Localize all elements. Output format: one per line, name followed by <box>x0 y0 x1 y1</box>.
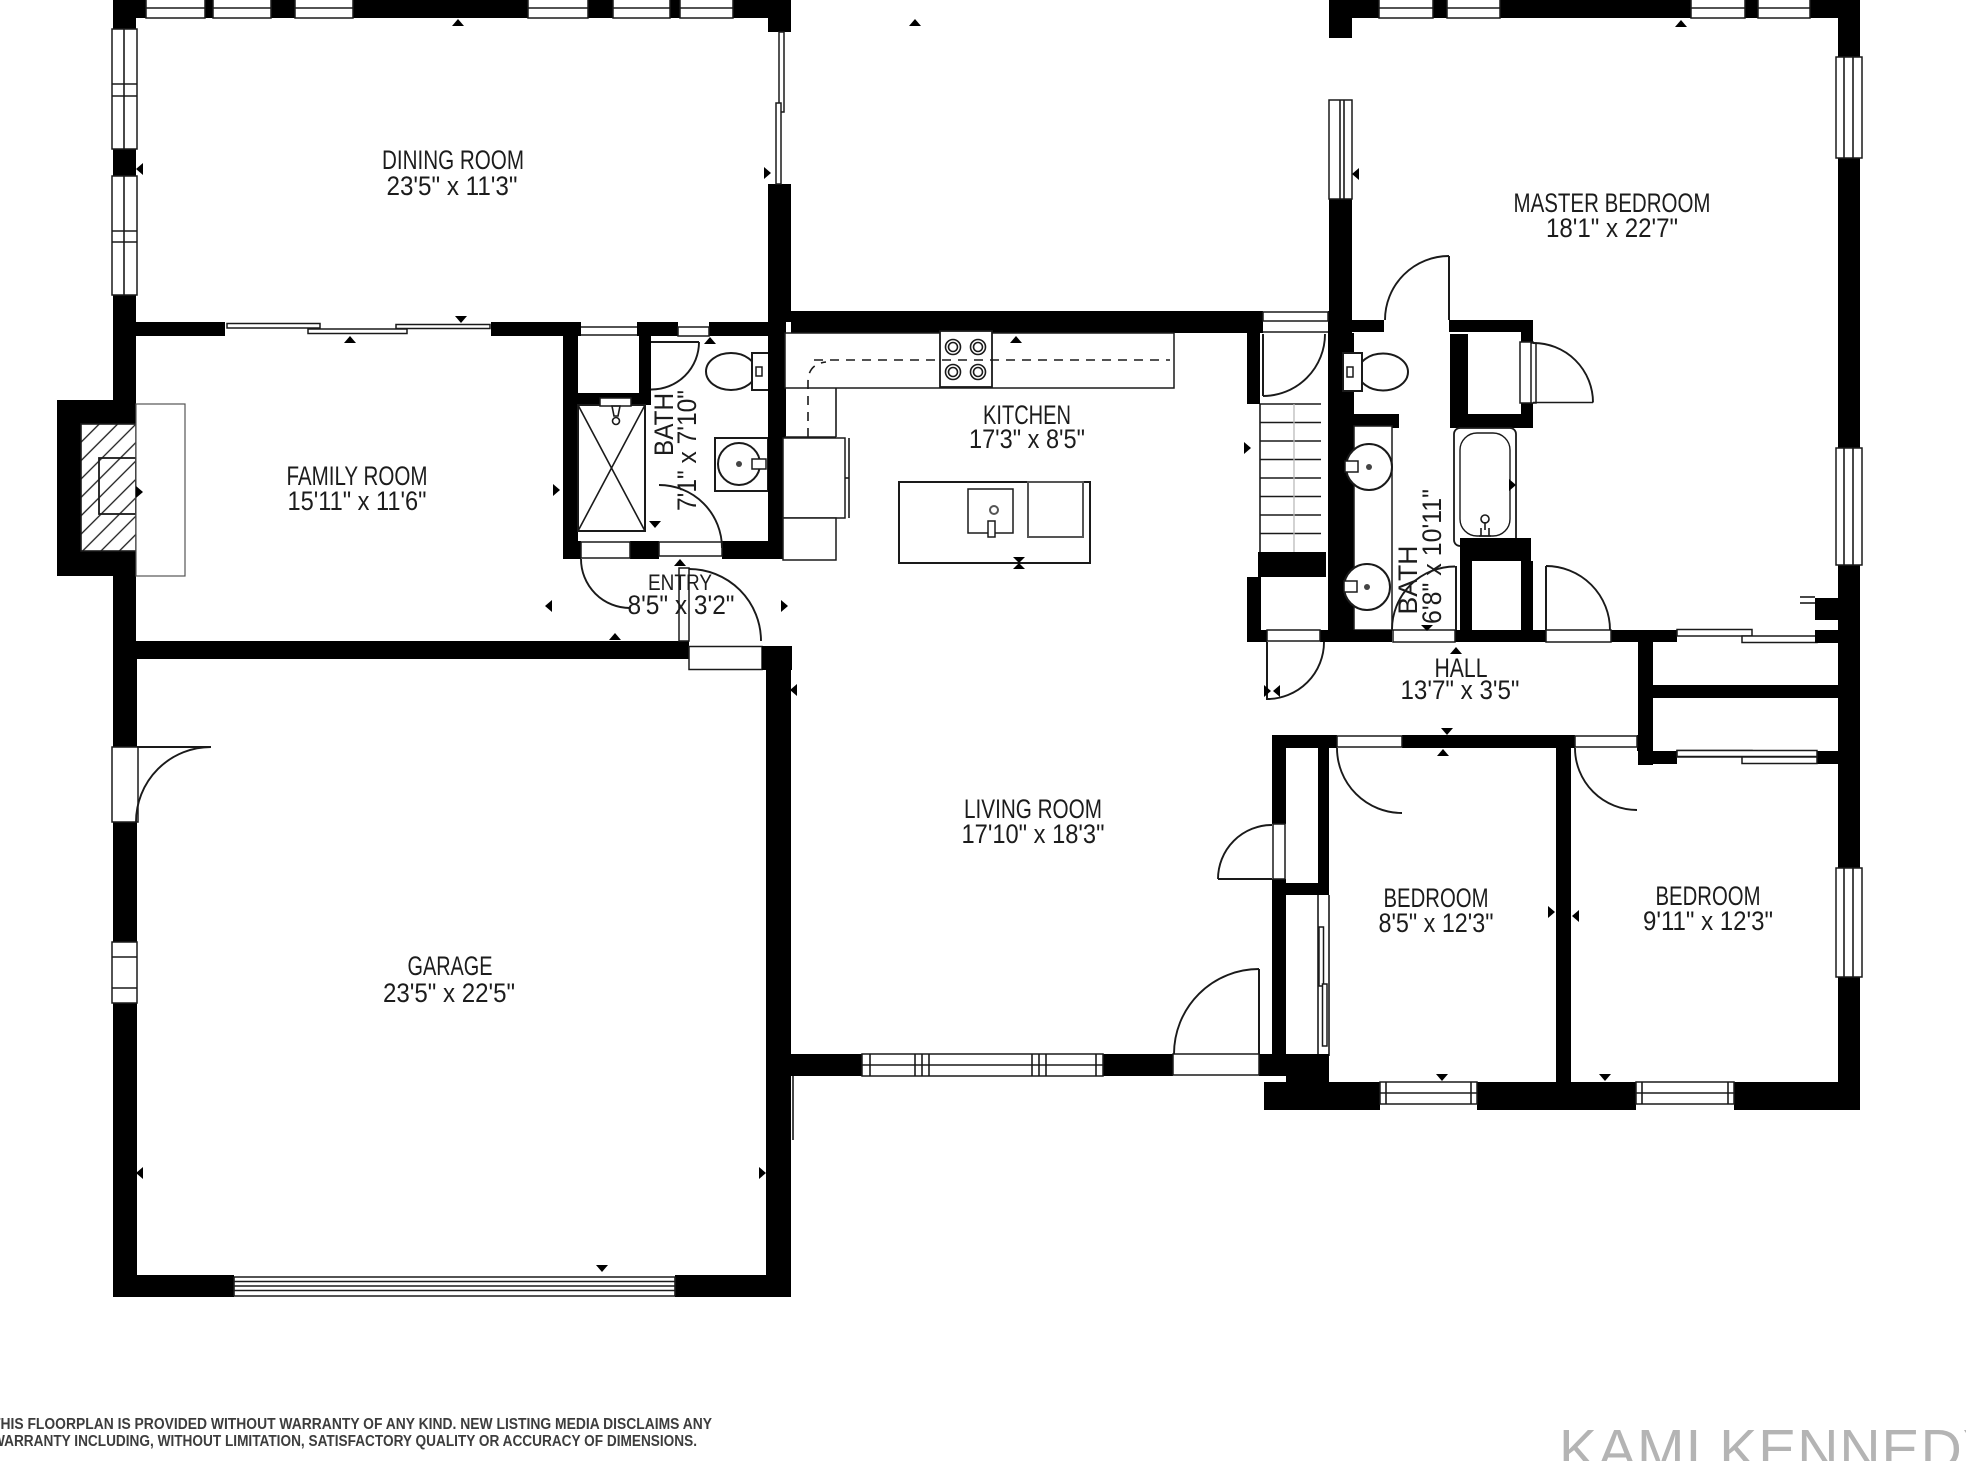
svg-text:7'1" x 7'10": 7'1" x 7'10" <box>672 390 702 511</box>
svg-text:THIS FLOORPLAN IS PROVIDED WIT: THIS FLOORPLAN IS PROVIDED WITHOUT WARRA… <box>0 1416 712 1433</box>
svg-text:8'5" x 3'2": 8'5" x 3'2" <box>628 590 735 620</box>
svg-text:WARRANTY INCLUDING, WITHOUT LI: WARRANTY INCLUDING, WITHOUT LIMITATION, … <box>0 1433 697 1450</box>
svg-text:23'5" x 22'5": 23'5" x 22'5" <box>383 978 515 1008</box>
svg-text:GARAGE: GARAGE <box>408 951 493 981</box>
svg-text:18'1" x 22'7": 18'1" x 22'7" <box>1546 213 1678 243</box>
svg-text:17'3" x 8'5": 17'3" x 8'5" <box>969 424 1085 454</box>
svg-text:9'11" x 12'3": 9'11" x 12'3" <box>1643 906 1773 936</box>
svg-text:KAMI KENNEDY: KAMI KENNEDY <box>1559 1418 1966 1461</box>
svg-text:23'5" x 11'3": 23'5" x 11'3" <box>387 171 518 201</box>
svg-text:17'10" x 18'3": 17'10" x 18'3" <box>962 819 1105 849</box>
svg-text:13'7" x 3'5": 13'7" x 3'5" <box>1401 675 1520 705</box>
svg-text:8'5" x 12'3": 8'5" x 12'3" <box>1379 908 1494 938</box>
svg-text:15'11" x 11'6": 15'11" x 11'6" <box>288 486 427 516</box>
svg-text:6'8" x 10'11": 6'8" x 10'11" <box>1417 489 1447 624</box>
